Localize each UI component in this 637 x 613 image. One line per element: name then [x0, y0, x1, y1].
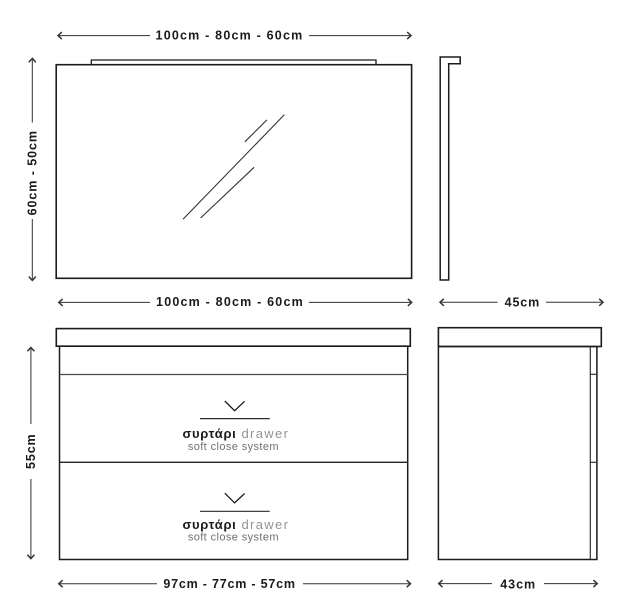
svg-text:soft close system: soft close system — [188, 532, 279, 544]
svg-text:συρτάρι drawer: συρτάρι drawer — [182, 517, 289, 532]
svg-text:43cm: 43cm — [500, 577, 536, 591]
svg-text:45cm: 45cm — [505, 295, 541, 309]
svg-text:soft close system: soft close system — [188, 441, 279, 453]
svg-text:συρτάρι drawer: συρτάρι drawer — [182, 426, 289, 441]
svg-text:100cm - 80cm - 60cm: 100cm - 80cm - 60cm — [156, 28, 304, 42]
svg-text:100cm - 80cm - 60cm: 100cm - 80cm - 60cm — [156, 295, 304, 309]
svg-text:55cm: 55cm — [24, 433, 38, 469]
svg-text:60cm - 50cm: 60cm - 50cm — [26, 130, 40, 215]
svg-text:97cm - 77cm - 57cm: 97cm - 77cm - 57cm — [163, 577, 295, 591]
